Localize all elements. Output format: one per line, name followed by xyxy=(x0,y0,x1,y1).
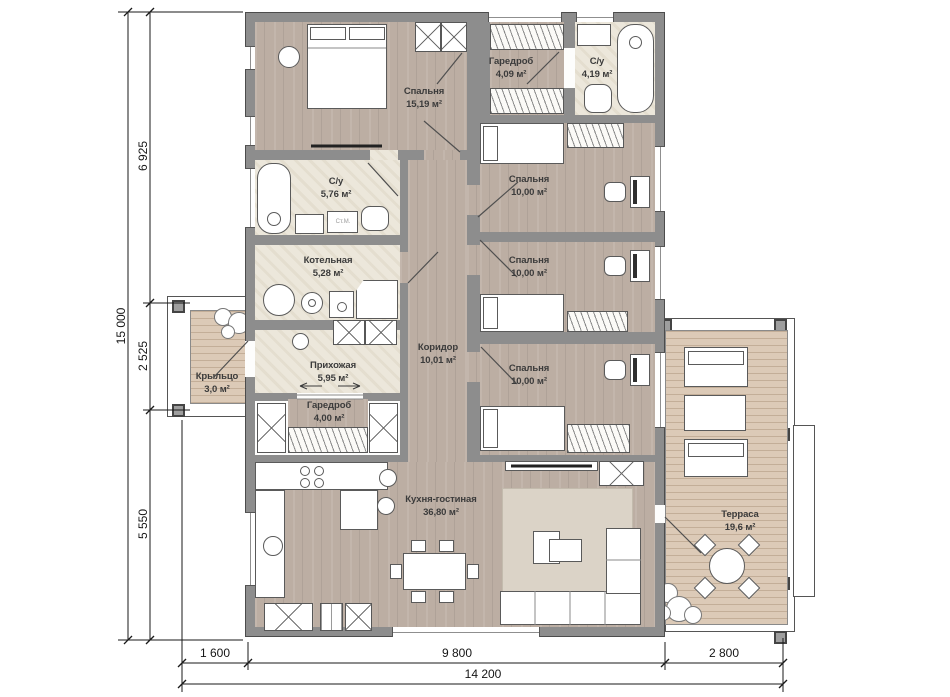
kitchen-island xyxy=(340,490,378,530)
sink xyxy=(295,214,324,234)
bar-stool xyxy=(379,469,397,487)
pillow xyxy=(483,409,498,448)
kitchen-sink xyxy=(263,536,283,556)
dim-left-2: 2 525 xyxy=(136,341,150,371)
dim-left-3: 5 550 xyxy=(136,509,150,539)
window-sliding-glazing xyxy=(392,627,540,637)
closet-x xyxy=(441,22,467,52)
room-corridor-floor xyxy=(408,160,467,462)
bath-faucet xyxy=(629,36,642,49)
window xyxy=(655,246,665,300)
door-opening xyxy=(400,252,408,283)
door-opening xyxy=(467,185,480,215)
cabinet xyxy=(320,603,343,631)
stove-burner xyxy=(300,478,310,488)
lounge-chair-back xyxy=(688,351,744,365)
pillow xyxy=(483,297,498,329)
cabinet-x xyxy=(345,603,372,631)
label-hallway: Прихожая5,95 м² xyxy=(310,359,356,385)
pillow xyxy=(310,27,346,40)
label-terrace: Терраса19,6 м² xyxy=(721,508,759,534)
dim-bottom-1: 1 600 xyxy=(200,646,230,660)
pillow xyxy=(483,126,498,161)
stove-burner xyxy=(314,466,324,476)
chair xyxy=(604,182,626,202)
window xyxy=(576,12,614,22)
label-bedroom1: Спальня10,00 м² xyxy=(509,173,549,199)
closet-x xyxy=(369,403,398,453)
dining-chair xyxy=(411,591,426,603)
chair xyxy=(604,256,626,276)
chair xyxy=(604,360,626,380)
label-bedroom3: Спальня10,00 м² xyxy=(509,362,549,388)
wardrobe-hatch xyxy=(567,424,630,453)
dining-chair xyxy=(411,540,426,552)
window xyxy=(488,12,562,22)
boiler-pump-core xyxy=(308,299,316,307)
label-bathroom-top: С/у4,19 м² xyxy=(582,55,613,81)
sink xyxy=(577,24,611,46)
door-opening-porch xyxy=(245,341,255,377)
door-opening xyxy=(467,245,480,275)
window xyxy=(245,168,255,228)
porch-post xyxy=(172,404,185,417)
door-opening-terrace xyxy=(655,505,665,523)
stove-burner xyxy=(314,478,324,488)
dining-chair xyxy=(390,564,402,579)
plant-icon xyxy=(221,325,235,339)
terrace-table xyxy=(684,395,746,431)
dim-left-1: 6 925 xyxy=(136,141,150,171)
door-opening xyxy=(467,352,480,382)
washing-machine-label: Ст.М. xyxy=(336,219,351,225)
boiler-unit-dial xyxy=(337,302,347,312)
dining-chair xyxy=(439,540,454,552)
label-corridor: Коридор10,01 м² xyxy=(418,341,458,367)
porch-post xyxy=(172,300,185,313)
round-table xyxy=(709,548,745,584)
wardrobe-hatch xyxy=(567,311,628,332)
door-opening xyxy=(370,150,398,160)
wardrobe-hatch xyxy=(567,123,624,148)
window xyxy=(245,512,255,586)
bath-faucet xyxy=(267,212,281,226)
label-kitchen-living: Кухня-гостиная36,80 м² xyxy=(405,493,476,519)
shelving-hatch xyxy=(490,24,564,50)
plant-icon xyxy=(684,606,702,624)
cabinet-x xyxy=(599,461,644,486)
terrace-post xyxy=(774,631,787,644)
floor-plan: Ст.М. xyxy=(0,0,950,697)
monitor xyxy=(633,358,637,382)
dim-bottom-total: 14 200 xyxy=(465,667,502,681)
door-opening xyxy=(424,150,460,160)
dim-left-total: 15 000 xyxy=(114,308,128,345)
shelving-hatch xyxy=(288,427,368,453)
sofa-corner xyxy=(606,528,641,594)
label-wardrobe-small: Гаредроб4,00 м² xyxy=(307,399,351,425)
monitor xyxy=(633,254,637,278)
bar-stool xyxy=(377,497,395,515)
stove-burner xyxy=(300,466,310,476)
toilet xyxy=(584,84,612,113)
pouf xyxy=(278,46,300,68)
lounge-chair-back xyxy=(688,443,744,457)
cabinet-x xyxy=(264,603,313,631)
dining-table xyxy=(403,553,466,590)
tv-console xyxy=(505,461,598,471)
window xyxy=(655,352,665,428)
sofa xyxy=(500,591,641,625)
label-wardrobe-top: Гаредроб4,09 м² xyxy=(489,55,533,81)
dim-bottom-2: 9 800 xyxy=(442,646,472,660)
label-porch: Крыльцо3,0 м² xyxy=(196,370,239,396)
closet-x xyxy=(365,320,397,345)
dining-chair xyxy=(439,591,454,603)
door-opening xyxy=(564,48,575,88)
coffee-table xyxy=(549,539,582,562)
closet-x xyxy=(333,320,365,345)
dim-bottom-3: 2 800 xyxy=(709,646,739,660)
pouf xyxy=(292,333,309,350)
window xyxy=(245,116,255,146)
closet-x xyxy=(257,403,286,453)
window xyxy=(245,46,255,70)
terrace-slab-bump xyxy=(793,425,815,597)
window xyxy=(655,146,665,212)
dining-chair xyxy=(467,564,479,579)
label-bedroom2: Спальня10,00 м² xyxy=(509,254,549,280)
pillow xyxy=(349,27,385,40)
boiler-tank xyxy=(263,284,295,316)
label-master-bedroom: Спальня15,19 м² xyxy=(404,85,444,111)
toilet xyxy=(361,206,389,231)
shelving-hatch xyxy=(490,88,564,114)
water-heater xyxy=(356,280,398,319)
label-boiler: Котельная5,28 м² xyxy=(304,254,353,280)
monitor xyxy=(633,180,637,204)
closet-x xyxy=(415,22,441,52)
label-bathroom-mid: С/у5,76 м² xyxy=(321,175,352,201)
